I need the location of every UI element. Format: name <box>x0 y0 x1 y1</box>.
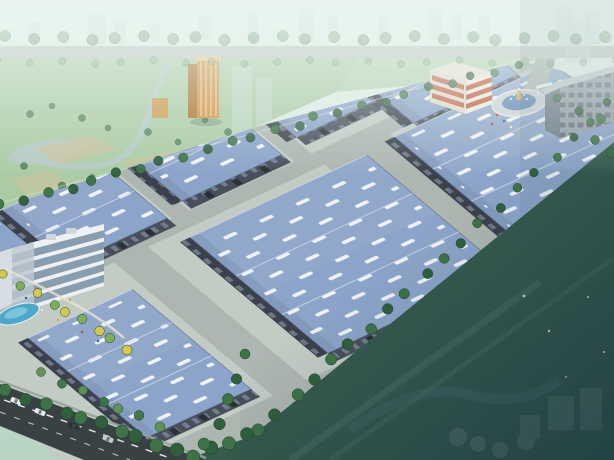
tree <box>60 307 69 316</box>
person-speck <box>97 340 99 342</box>
office-rooftop-unit <box>66 228 76 234</box>
tree <box>19 196 29 206</box>
tree <box>113 404 123 414</box>
tree <box>115 425 128 438</box>
tree <box>198 438 210 450</box>
tree <box>95 416 108 429</box>
tree <box>0 384 11 396</box>
tree <box>78 314 87 323</box>
person-speck <box>57 319 59 321</box>
tree <box>129 429 143 443</box>
aerial-rendering-industrial-park: Aerial rendering of an industrial park w… <box>0 0 614 460</box>
tree <box>0 270 7 278</box>
tree <box>149 439 163 453</box>
rendering-canvas: Aerial rendering of an industrial park w… <box>0 0 614 460</box>
tree <box>50 301 59 310</box>
tree <box>223 394 234 405</box>
person-speck <box>13 285 15 287</box>
tree <box>40 398 52 410</box>
tree <box>155 422 165 432</box>
tree <box>33 289 42 298</box>
tree <box>86 176 96 186</box>
office-rooftop-unit <box>46 234 56 240</box>
person-speck <box>25 297 27 299</box>
tree <box>16 282 25 291</box>
tree <box>20 393 32 405</box>
person-speck <box>69 299 71 301</box>
person-speck <box>41 309 43 311</box>
tree <box>170 443 184 457</box>
tree <box>95 326 105 336</box>
person-speck <box>81 331 83 333</box>
tree <box>68 184 78 194</box>
tree <box>37 368 46 377</box>
tree <box>44 187 54 197</box>
tree <box>134 410 144 420</box>
tree <box>74 411 87 424</box>
tree <box>214 418 226 430</box>
tree <box>57 379 66 388</box>
edge-tint <box>520 0 614 460</box>
tree <box>122 345 132 355</box>
tree <box>105 333 115 343</box>
tree <box>222 437 235 450</box>
tree <box>99 397 109 407</box>
tree <box>78 386 87 395</box>
office-low-wing <box>0 248 12 310</box>
tree <box>61 407 74 420</box>
